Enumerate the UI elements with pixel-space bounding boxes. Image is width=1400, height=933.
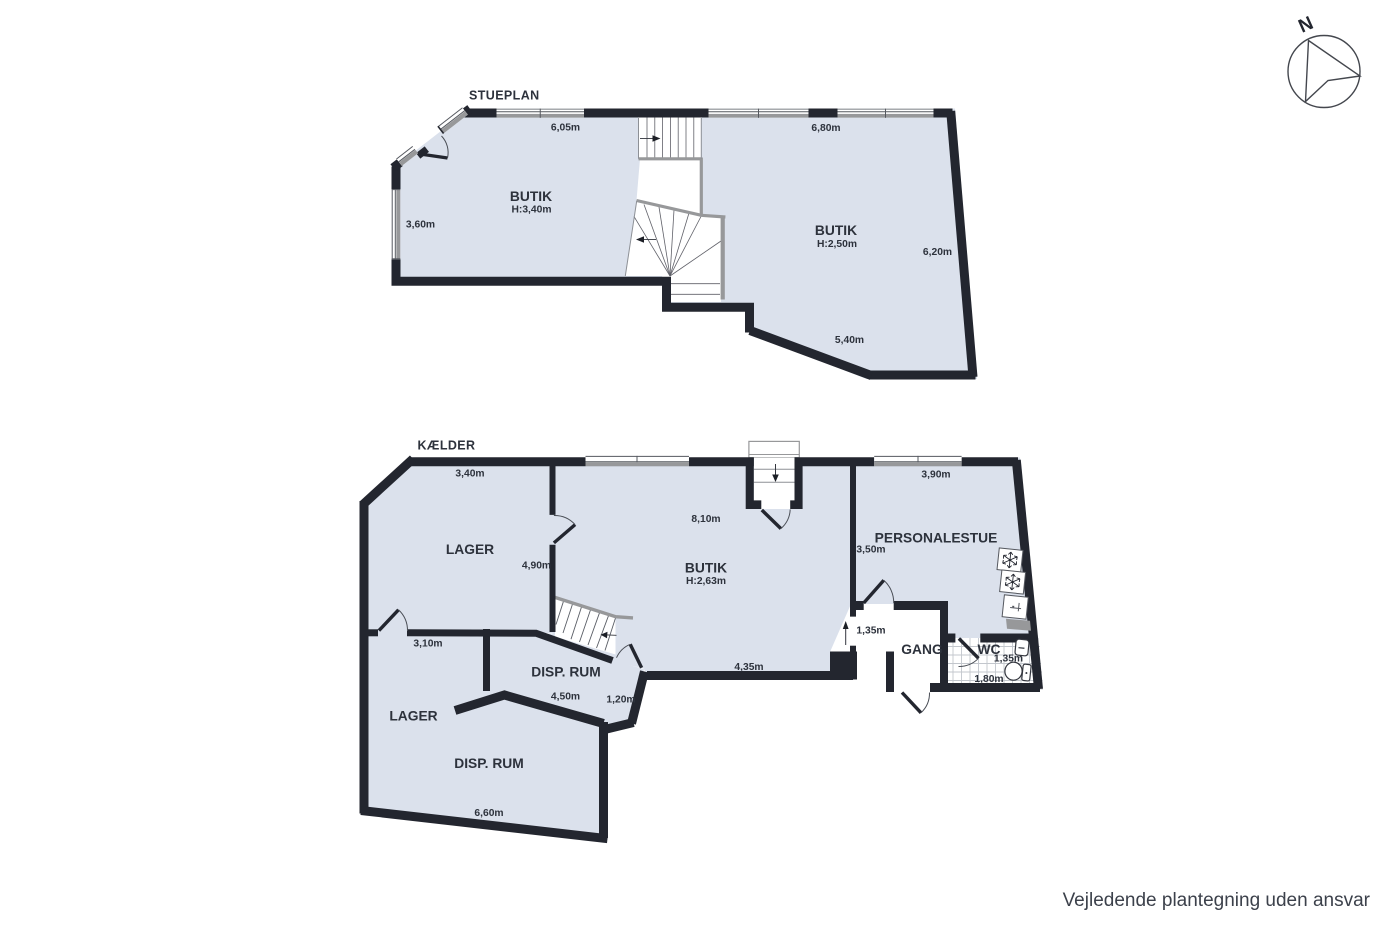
svg-text:3,50m: 3,50m: [856, 545, 885, 556]
svg-text:STUEPLAN: STUEPLAN: [469, 89, 540, 103]
svg-text:LAGER: LAGER: [446, 542, 494, 557]
svg-text:1,20m: 1,20m: [606, 695, 635, 706]
svg-text:Vejledende plantegning uden an: Vejledende plantegning uden ansvar: [1063, 890, 1371, 911]
svg-text:3,60m: 3,60m: [406, 220, 435, 231]
svg-text:DISP. RUM: DISP. RUM: [454, 756, 524, 771]
svg-text:H:2,63m: H:2,63m: [686, 576, 726, 587]
svg-text:8,10m: 8,10m: [691, 514, 720, 525]
svg-text:BUTIK: BUTIK: [510, 189, 552, 204]
svg-text:4,50m: 4,50m: [551, 692, 580, 703]
svg-text:3,10m: 3,10m: [413, 639, 442, 650]
svg-text:DISP. RUM: DISP. RUM: [531, 665, 601, 680]
svg-text:H:3,40m: H:3,40m: [511, 204, 551, 215]
svg-text:6,05m: 6,05m: [551, 123, 580, 134]
svg-text:3,40m: 3,40m: [455, 469, 484, 480]
svg-text:LAGER: LAGER: [389, 709, 437, 724]
svg-text:4,90m: 4,90m: [522, 561, 551, 572]
svg-text:4,35m: 4,35m: [734, 662, 763, 673]
svg-text:1,80m: 1,80m: [974, 674, 1003, 685]
svg-text:6,20m: 6,20m: [923, 247, 952, 258]
svg-text:BUTIK: BUTIK: [815, 223, 857, 238]
svg-text:3,90m: 3,90m: [921, 470, 950, 481]
svg-text:H:2,50m: H:2,50m: [817, 239, 857, 250]
svg-text:5,40m: 5,40m: [835, 335, 864, 346]
svg-text:1,35m: 1,35m: [994, 654, 1023, 665]
svg-text:KÆLDER: KÆLDER: [418, 439, 476, 453]
svg-text:6,60m: 6,60m: [474, 808, 503, 819]
svg-text:GANG: GANG: [901, 642, 942, 657]
svg-text:6,80m: 6,80m: [811, 123, 840, 134]
svg-text:PERSONALESTUE: PERSONALESTUE: [875, 531, 998, 546]
svg-text:BUTIK: BUTIK: [685, 561, 727, 576]
svg-text:1,35m: 1,35m: [856, 626, 885, 637]
